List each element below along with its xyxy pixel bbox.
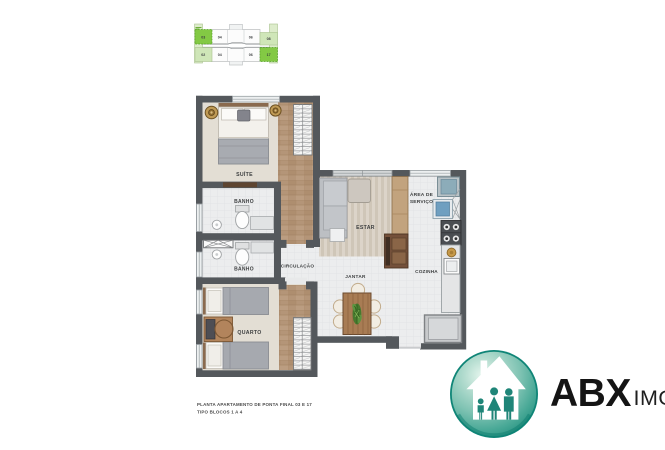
svg-text:04: 04 — [218, 53, 222, 57]
svg-text:03: 03 — [201, 36, 205, 40]
svg-text:BANHO: BANHO — [234, 267, 254, 273]
svg-text:SUÍTE: SUÍTE — [236, 170, 253, 178]
svg-text:QUARTO: QUARTO — [237, 330, 261, 336]
svg-text:IMOVEIS: IMOVEIS — [634, 386, 665, 410]
svg-text:ESTAR: ESTAR — [356, 225, 375, 231]
svg-text:JANTAR: JANTAR — [345, 274, 366, 279]
svg-text:COZINHA: COZINHA — [415, 269, 438, 274]
svg-text:PLANTA APARTAMENTO DE PONTA FI: PLANTA APARTAMENTO DE PONTA FINAL 03 E 1… — [197, 402, 312, 407]
svg-text:06: 06 — [249, 36, 253, 40]
svg-text:SERVIÇO: SERVIÇO — [410, 199, 433, 205]
svg-text:17: 17 — [267, 53, 271, 57]
svg-text:BANHO: BANHO — [234, 199, 254, 205]
svg-text:TIPO BLOCOS 1 A 4: TIPO BLOCOS 1 A 4 — [197, 409, 243, 414]
svg-text:ABX: ABX — [550, 372, 631, 415]
svg-text:04: 04 — [218, 36, 222, 40]
svg-text:CIRCULAÇÃO: CIRCULAÇÃO — [281, 263, 315, 269]
svg-text:02: 02 — [201, 53, 205, 57]
svg-text:06: 06 — [249, 53, 253, 57]
svg-text:08: 08 — [267, 37, 271, 41]
svg-text:ÁREA DE: ÁREA DE — [410, 191, 434, 198]
